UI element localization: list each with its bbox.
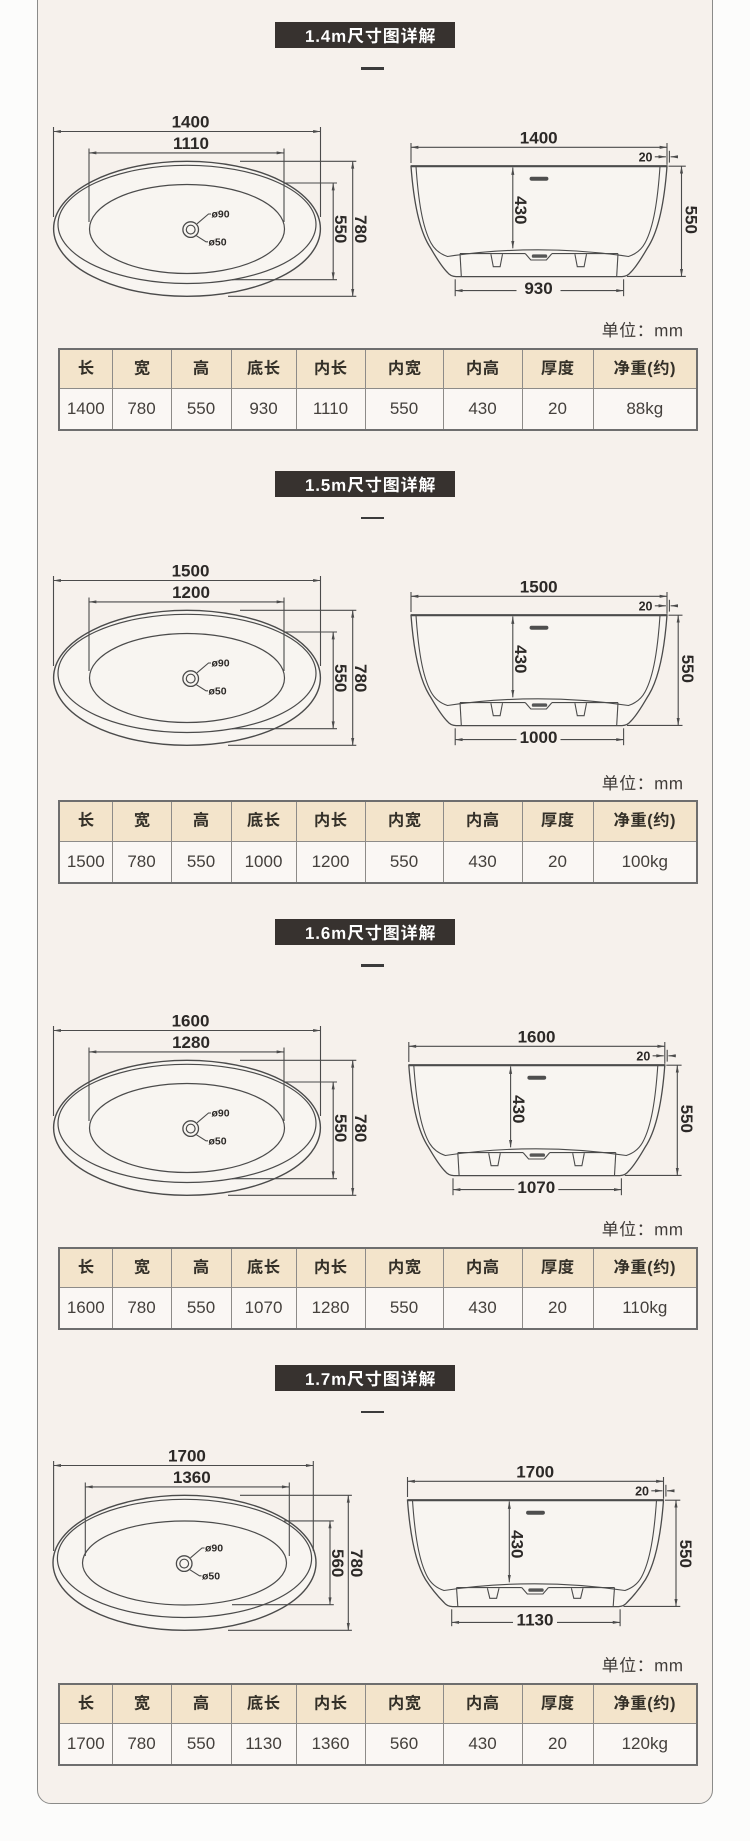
svg-text:1000: 1000 <box>520 727 558 746</box>
svg-text:550: 550 <box>676 1539 695 1567</box>
svg-text:1400: 1400 <box>172 113 210 132</box>
svg-text:1700: 1700 <box>516 1462 554 1481</box>
svg-text:1070: 1070 <box>517 1177 555 1196</box>
svg-text:20: 20 <box>639 150 653 164</box>
svg-text:ø50: ø50 <box>209 236 227 248</box>
svg-text:550: 550 <box>331 215 350 243</box>
svg-text:1360: 1360 <box>173 1468 211 1487</box>
svg-text:1200: 1200 <box>172 583 210 602</box>
svg-text:20: 20 <box>635 1484 649 1498</box>
svg-text:930: 930 <box>524 279 552 298</box>
svg-text:ø90: ø90 <box>205 1542 223 1554</box>
svg-text:1280: 1280 <box>172 1033 210 1052</box>
svg-text:1500: 1500 <box>520 577 558 596</box>
svg-text:1700: 1700 <box>168 1446 206 1465</box>
svg-text:550: 550 <box>681 206 700 234</box>
svg-text:550: 550 <box>678 654 697 682</box>
svg-text:780: 780 <box>351 664 370 692</box>
svg-text:ø90: ø90 <box>212 209 230 221</box>
svg-text:430: 430 <box>508 1530 527 1558</box>
svg-text:430: 430 <box>511 645 530 673</box>
svg-text:1500: 1500 <box>172 561 210 580</box>
svg-text:780: 780 <box>351 1114 370 1142</box>
svg-text:ø50: ø50 <box>209 685 227 697</box>
svg-text:20: 20 <box>636 1049 650 1063</box>
svg-text:430: 430 <box>509 1095 528 1123</box>
svg-text:550: 550 <box>677 1104 696 1132</box>
svg-text:ø90: ø90 <box>212 1107 230 1119</box>
svg-text:430: 430 <box>511 196 530 224</box>
svg-text:560: 560 <box>328 1549 347 1577</box>
svg-text:550: 550 <box>331 1114 350 1142</box>
svg-text:ø50: ø50 <box>202 1570 220 1582</box>
svg-text:780: 780 <box>347 1549 366 1577</box>
svg-text:1600: 1600 <box>518 1027 556 1046</box>
svg-text:ø90: ø90 <box>212 657 230 669</box>
svg-text:20: 20 <box>639 599 653 613</box>
svg-text:1400: 1400 <box>520 128 558 147</box>
svg-text:1600: 1600 <box>172 1011 210 1030</box>
svg-text:550: 550 <box>331 664 350 692</box>
svg-text:1130: 1130 <box>517 1610 554 1629</box>
svg-text:1110: 1110 <box>173 134 209 153</box>
svg-text:780: 780 <box>351 215 370 243</box>
svg-text:ø50: ø50 <box>209 1135 227 1147</box>
